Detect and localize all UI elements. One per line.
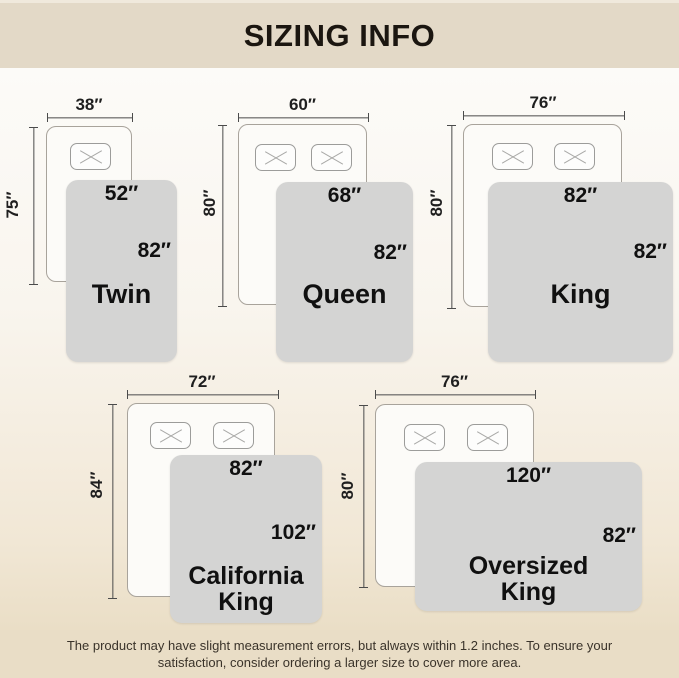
pillow-icon [492, 143, 533, 170]
blanket-size-name: King [488, 280, 673, 308]
blanket-length-label: 82″ [603, 524, 636, 548]
bed-width-label: 72″ [127, 372, 277, 392]
blanket-size-name: California King [176, 563, 316, 616]
page-title: SIZING INFO [244, 18, 436, 54]
bed-width-label: 38″ [47, 95, 131, 115]
length-measure-line [108, 404, 117, 599]
blanket-length-label: 102″ [271, 521, 316, 545]
blanket-length-label: 82″ [634, 240, 667, 264]
blanket: 82″ 82″ King [488, 182, 673, 362]
pillow-icon [311, 144, 352, 171]
blanket: 68″ 82″ Queen [276, 182, 413, 362]
pillow-icon [404, 424, 445, 451]
width-measure-line [127, 390, 279, 399]
blanket-width-label: 68″ [276, 184, 413, 208]
blanket-width-label: 52″ [66, 182, 177, 206]
bed-width-label: 76″ [375, 372, 534, 392]
bed-length-label: 80″ [200, 181, 220, 225]
bed-width-label: 60″ [238, 95, 367, 115]
bed-length-label: 80″ [427, 181, 447, 225]
pillow-icon [467, 424, 508, 451]
blanket: 82″ 102″ California King [170, 455, 322, 623]
disclaimer-bar: The product may have slight measurement … [0, 630, 679, 678]
blanket: 52″ 82″ Twin [66, 180, 177, 362]
width-measure-line [47, 113, 133, 122]
blanket-size-name: Twin [66, 280, 177, 308]
pillow-icon [554, 143, 595, 170]
blanket-width-label: 82″ [488, 184, 673, 208]
width-measure-line [375, 390, 536, 399]
bed-length-label: 75″ [3, 183, 23, 227]
pillow-icon [213, 422, 254, 449]
pillow-icon [150, 422, 191, 449]
blanket: 120″ 82″ Oversized King [415, 462, 642, 611]
pillow-icon [255, 144, 296, 171]
blanket-length-label: 82″ [138, 239, 171, 263]
width-measure-line [238, 113, 369, 122]
length-measure-line [218, 125, 227, 307]
blanket-width-label: 82″ [170, 457, 322, 481]
bed-length-label: 80″ [338, 464, 358, 508]
length-measure-line [29, 127, 38, 285]
disclaimer-line-1: The product may have slight measurement … [67, 637, 612, 654]
disclaimer-line-2: satisfaction, consider ordering a larger… [158, 654, 521, 671]
length-measure-line [359, 405, 368, 588]
pillow-icon [70, 143, 111, 170]
bed-width-label: 76″ [463, 93, 623, 113]
blanket-length-label: 82″ [374, 241, 407, 265]
blanket-width-label: 120″ [415, 464, 642, 488]
sizing-info-page: SIZING INFO 38″ 75″ 52″ 82″ Twin 60″ 80″… [0, 0, 679, 678]
length-measure-line [447, 125, 456, 309]
bed-length-label: 84″ [87, 463, 107, 507]
width-measure-line [463, 111, 625, 120]
blanket-size-name: Oversized King [443, 553, 614, 606]
header-banner: SIZING INFO [0, 0, 679, 68]
blanket-size-name: Queen [276, 280, 413, 308]
